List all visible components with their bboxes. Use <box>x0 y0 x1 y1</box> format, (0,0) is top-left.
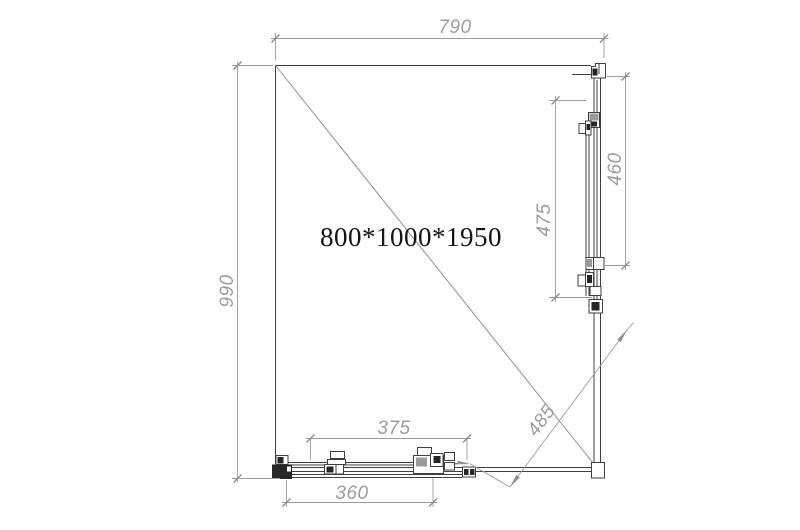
top-right-bracket <box>592 64 606 79</box>
bottom-roller-carriage-2 <box>414 448 444 474</box>
dim-side-glass-label: 460 <box>605 152 626 185</box>
corner-fitting <box>589 300 603 314</box>
dim-bottom-glass: 360 <box>282 478 437 507</box>
drawing-canvas: 790 990 475 460 375 <box>0 0 800 530</box>
corner-post <box>592 463 605 479</box>
dim-left-depth: 990 <box>217 62 280 483</box>
dim-left-depth-label: 990 <box>217 274 238 307</box>
dim-top-width-label: 790 <box>438 17 471 38</box>
side-door-handle <box>579 121 591 135</box>
dim-side-panel-label: 475 <box>534 203 555 236</box>
dim-side-glass: 460 <box>604 72 630 270</box>
dim-corner-opening-label: 485 <box>523 401 560 440</box>
side-panel-assembly <box>586 78 601 463</box>
dim-bottom-panel-label: 375 <box>377 418 410 439</box>
rail-end-guide <box>463 467 476 477</box>
dim-corner-opening: 485 <box>458 323 634 488</box>
size-label: 800*1000*1950 <box>320 222 502 252</box>
bottom-door-handle <box>445 453 455 471</box>
bottom-roller-carriage-1 <box>325 452 346 475</box>
dim-top-width: 790 <box>271 17 609 60</box>
shower-enclosure-plan-drawing: 790 990 475 460 375 <box>0 0 800 530</box>
dim-bottom-glass-label: 360 <box>335 483 368 504</box>
